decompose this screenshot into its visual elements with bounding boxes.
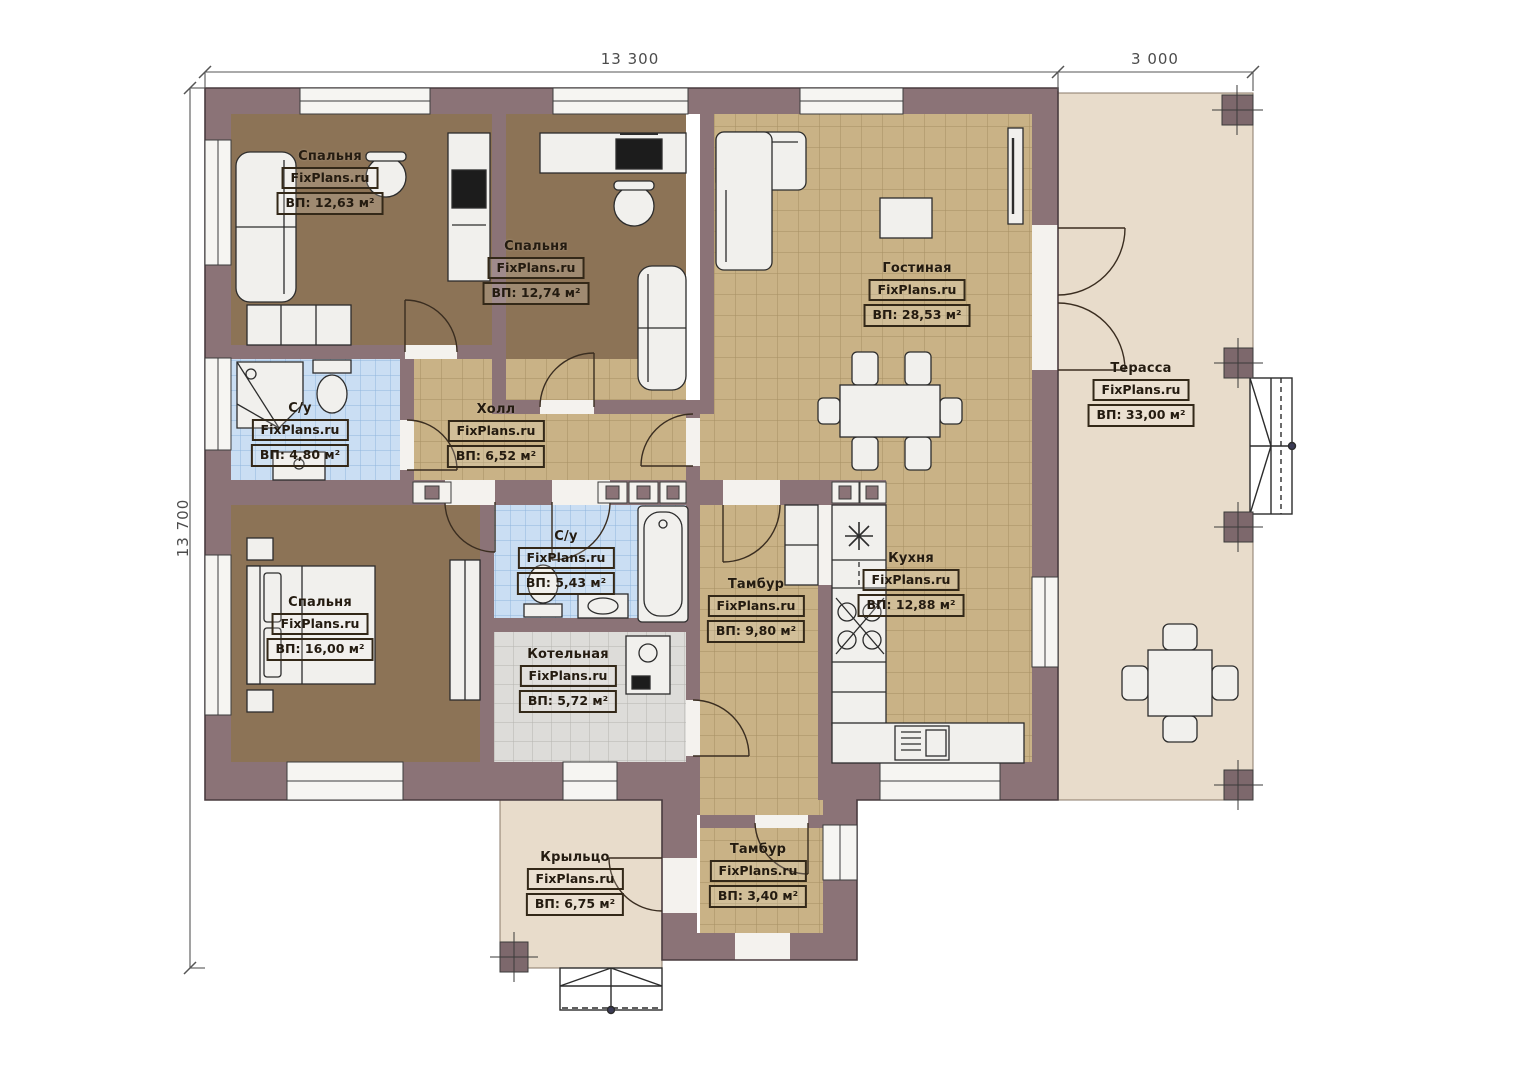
- watermark-box: FixPlans.ru: [282, 167, 379, 189]
- watermark-box: FixPlans.ru: [448, 420, 545, 442]
- window: [205, 555, 231, 715]
- room-name: Котельная: [527, 648, 609, 661]
- room-name: Спальня: [298, 150, 362, 163]
- window: [880, 762, 1000, 800]
- window: [553, 88, 688, 114]
- fridge-icon: [845, 522, 873, 550]
- vent-icon: [660, 482, 686, 503]
- terrace-stairs-icon: [1250, 378, 1296, 514]
- desk-icon: [540, 133, 686, 173]
- window: [205, 140, 231, 265]
- window: [205, 358, 231, 450]
- room-name: С/у: [554, 530, 577, 543]
- window: [800, 88, 903, 114]
- window: [823, 825, 857, 880]
- window: [1032, 577, 1058, 667]
- watermark-box: FixPlans.ru: [1093, 379, 1190, 401]
- dimension-top-terrace: 3 000: [1131, 50, 1179, 68]
- room-name: Кухня: [888, 552, 934, 565]
- window: [563, 762, 617, 800]
- area-box: ВП: 4,80 м²: [251, 444, 349, 466]
- watermark-box: FixPlans.ru: [527, 868, 624, 890]
- vent-icon: [413, 482, 451, 503]
- room-label-boiler: Котельная FixPlans.ru ВП: 5,72 м²: [519, 648, 617, 713]
- room-label-tambur-2: Тамбур FixPlans.ru ВП: 3,40 м²: [709, 843, 807, 908]
- living-corridor-floor: [700, 414, 714, 480]
- nightstand-icon: [247, 690, 273, 712]
- watermark-box: FixPlans.ru: [869, 279, 966, 301]
- room-name: Спальня: [504, 240, 568, 253]
- room-label-bedroom-2: Спальня FixPlans.ru ВП: 12,74 м²: [483, 240, 590, 305]
- vent-icon: [832, 482, 859, 503]
- watermark-box: FixPlans.ru: [863, 569, 960, 591]
- watermark-box: FixPlans.ru: [708, 595, 805, 617]
- area-box: ВП: 12,74 м²: [483, 282, 590, 304]
- room-name: Тамбур: [730, 843, 786, 856]
- coffee-table-icon: [880, 198, 932, 238]
- vent-icon: [860, 482, 886, 503]
- watermark-box: FixPlans.ru: [252, 419, 349, 441]
- sink-icon: [578, 594, 628, 618]
- porch-stairs-icon: [560, 968, 662, 1014]
- area-box: ВП: 9,80 м²: [707, 620, 805, 642]
- floor-plan-page: 13 300 3 000 13 700 Спальня FixPlans.ru …: [0, 0, 1528, 1080]
- tv-icon: [1008, 128, 1023, 224]
- room-name: Холл: [477, 403, 516, 416]
- room-name: Терасса: [1110, 362, 1171, 375]
- area-box: ВП: 5,43 м²: [517, 572, 615, 594]
- loveseat-icon: [638, 266, 686, 390]
- wardrobe-icon: [247, 305, 351, 345]
- cabinet-icon: [785, 505, 818, 585]
- area-box: ВП: 16,00 м²: [267, 638, 374, 660]
- watermark-box: FixPlans.ru: [272, 613, 369, 635]
- watermark-box: FixPlans.ru: [710, 860, 807, 882]
- watermark-box: FixPlans.ru: [488, 257, 585, 279]
- room-label-bedroom-3: Спальня FixPlans.ru ВП: 16,00 м²: [267, 596, 374, 661]
- dimension-left: 13 700: [174, 499, 192, 558]
- window: [300, 88, 430, 114]
- room-label-bath-1: С/у FixPlans.ru ВП: 4,80 м²: [251, 402, 349, 467]
- vent-icon: [629, 482, 658, 503]
- wardrobe-icon: [450, 560, 480, 700]
- room-label-bedroom-1: Спальня FixPlans.ru ВП: 12,63 м²: [277, 150, 384, 215]
- watermark-box: FixPlans.ru: [520, 665, 617, 687]
- room-name: Спальня: [288, 596, 352, 609]
- room-name: Тамбур: [728, 578, 784, 591]
- room-name: С/у: [288, 402, 311, 415]
- area-box: ВП: 12,63 м²: [277, 192, 384, 214]
- nightstand-icon: [247, 538, 273, 560]
- kitchen-base-counter-icon: [832, 723, 1024, 763]
- vent-icon: [598, 482, 627, 503]
- room-label-hall: Холл FixPlans.ru ВП: 6,52 м²: [447, 403, 545, 468]
- room-name: Гостиная: [882, 262, 951, 275]
- window: [287, 762, 403, 800]
- room-name: Крыльцо: [540, 851, 609, 864]
- area-box: ВП: 28,53 м²: [864, 304, 971, 326]
- bathtub-icon: [638, 506, 688, 622]
- area-box: ВП: 5,72 м²: [519, 690, 617, 712]
- living-kitchen-opening: [886, 480, 1032, 505]
- room-label-terrace: Терасса FixPlans.ru ВП: 33,00 м²: [1088, 362, 1195, 427]
- floor-plan-drawing: [0, 0, 1528, 1080]
- watermark-box: FixPlans.ru: [518, 547, 615, 569]
- room-label-living: Гостиная FixPlans.ru ВП: 28,53 м²: [864, 262, 971, 327]
- office-chair-icon: [614, 181, 654, 226]
- area-box: ВП: 6,75 м²: [526, 893, 624, 915]
- dimension-top-main: 13 300: [601, 50, 660, 68]
- area-box: ВП: 12,88 м²: [858, 594, 965, 616]
- area-box: ВП: 6,52 м²: [447, 445, 545, 467]
- boiler-icon: [626, 636, 670, 694]
- room-label-bath-2: С/у FixPlans.ru ВП: 5,43 м²: [517, 530, 615, 595]
- room-label-kitchen: Кухня FixPlans.ru ВП: 12,88 м²: [858, 552, 965, 617]
- room-label-tambur-1: Тамбур FixPlans.ru ВП: 9,80 м²: [707, 578, 805, 643]
- area-box: ВП: 3,40 м²: [709, 885, 807, 907]
- area-box: ВП: 33,00 м²: [1088, 404, 1195, 426]
- room-label-porch: Крыльцо FixPlans.ru ВП: 6,75 м²: [526, 851, 624, 916]
